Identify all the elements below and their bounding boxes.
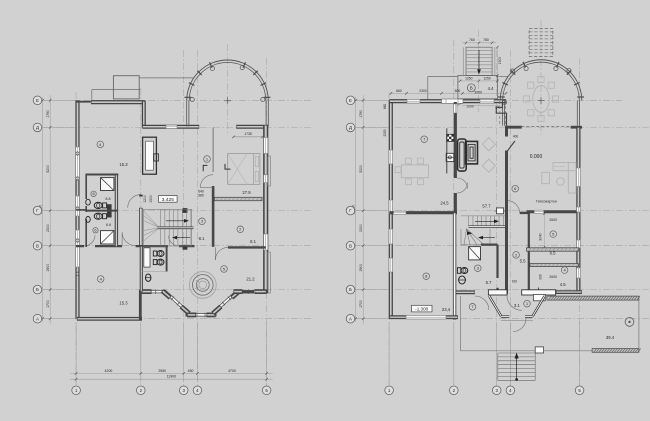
svg-text:2900: 2900	[359, 264, 363, 272]
svg-text:1500: 1500	[498, 57, 502, 65]
svg-text:600: 600	[455, 89, 461, 93]
svg-text:1000: 1000	[466, 105, 474, 109]
svg-text:1790: 1790	[359, 110, 363, 118]
svg-text:27.9: 27.9	[242, 190, 251, 195]
svg-text:4700: 4700	[228, 369, 236, 373]
svg-text:Д: Д	[36, 125, 39, 130]
svg-text:0.000: 0.000	[530, 154, 543, 160]
svg-text:1500: 1500	[149, 195, 153, 203]
svg-text:21.2: 21.2	[246, 277, 255, 282]
svg-text:Е: Е	[349, 98, 352, 103]
svg-text:В: В	[36, 243, 39, 248]
svg-text:4.5: 4.5	[560, 282, 566, 287]
svg-text:Д: Д	[349, 125, 352, 130]
svg-text:8.8: 8.8	[105, 197, 110, 201]
svg-text:6.5: 6.5	[550, 251, 556, 256]
svg-text:1250: 1250	[465, 77, 473, 81]
svg-text:3000: 3000	[474, 91, 482, 95]
svg-text:2300: 2300	[419, 89, 427, 93]
svg-text:4.4: 4.4	[488, 86, 494, 91]
svg-text:А: А	[36, 316, 39, 321]
svg-text:2200: 2200	[383, 129, 387, 136]
svg-text:380: 380	[198, 194, 204, 198]
svg-text:6.6: 6.6	[106, 223, 111, 227]
svg-text:660: 660	[383, 104, 387, 110]
svg-text:А: А	[349, 316, 352, 321]
svg-text:11900: 11900	[167, 375, 177, 379]
svg-text:3.1: 3.1	[514, 303, 520, 308]
svg-text:3040: 3040	[538, 233, 542, 241]
svg-text:660: 660	[396, 89, 402, 93]
svg-text:23,4: 23,4	[442, 307, 451, 312]
svg-text:Б: Б	[36, 287, 39, 292]
svg-text:1210: 1210	[143, 195, 147, 203]
svg-text:15.3: 15.3	[119, 301, 128, 306]
svg-text:1250: 1250	[483, 77, 491, 81]
svg-text:5.7: 5.7	[486, 280, 492, 285]
svg-text:910: 910	[512, 279, 518, 283]
svg-text:5.5: 5.5	[520, 259, 526, 264]
svg-text:В: В	[470, 85, 473, 90]
svg-text:2600: 2600	[549, 218, 557, 222]
svg-text:Е: Е	[36, 98, 39, 103]
svg-text:2550: 2550	[158, 369, 166, 373]
svg-text:400: 400	[513, 135, 519, 139]
svg-text:24,5: 24,5	[440, 201, 449, 206]
svg-text:5200: 5200	[359, 165, 363, 173]
svg-text:2300: 2300	[359, 224, 363, 232]
svg-text:780: 780	[483, 38, 489, 42]
svg-text:5200: 5200	[46, 165, 50, 173]
svg-text:450: 450	[188, 369, 194, 373]
svg-text:57.7: 57.7	[482, 203, 491, 208]
svg-text:2300: 2300	[46, 224, 50, 232]
svg-text:900: 900	[538, 274, 542, 280]
svg-text:4200: 4200	[105, 369, 113, 373]
svg-text:3.425: 3.425	[162, 197, 175, 203]
svg-text:8.1: 8.1	[250, 239, 256, 244]
svg-text:Гипсокартон: Гипсокартон	[536, 199, 557, 203]
svg-text:39.4: 39.4	[606, 335, 615, 340]
svg-text:1735: 1735	[244, 132, 252, 136]
svg-text:В: В	[349, 243, 352, 248]
svg-text:-1.300: -1.300	[415, 307, 428, 312]
svg-text:2900: 2900	[46, 264, 50, 272]
svg-text:Б: Б	[349, 287, 352, 292]
svg-text:1700: 1700	[46, 300, 50, 308]
svg-text:2600: 2600	[549, 275, 557, 279]
svg-text:8.1: 8.1	[199, 236, 205, 241]
svg-text:15.3: 15.3	[119, 162, 128, 167]
svg-text:1790: 1790	[46, 110, 50, 118]
svg-text:1700: 1700	[359, 300, 363, 308]
svg-text:760: 760	[469, 38, 475, 42]
